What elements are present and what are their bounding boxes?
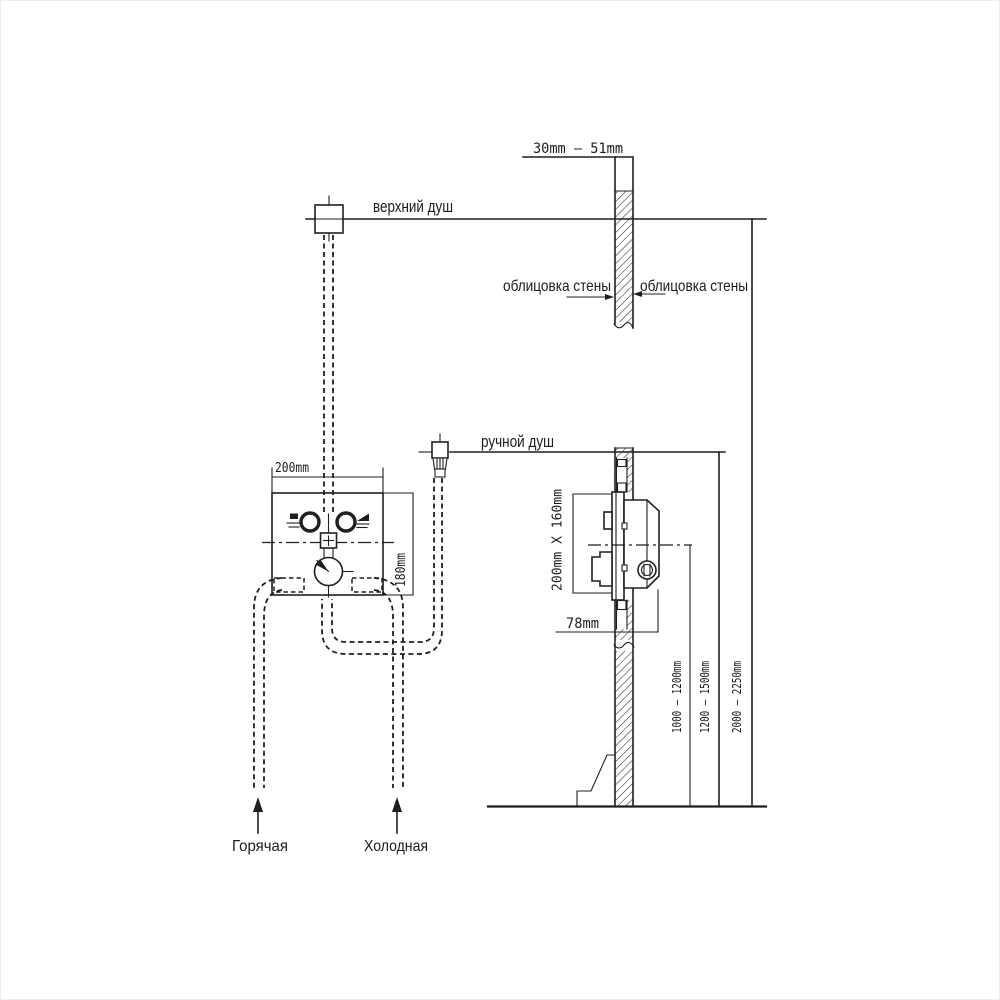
bolt-top xyxy=(622,523,627,529)
supply-pipe-channel xyxy=(617,600,628,629)
upper-shower-height-range-label: 2000 — 2250mm xyxy=(729,661,744,733)
cladding-left-label: облицовка стены xyxy=(503,278,611,295)
diagram-canvas: 200mm 180mm 200mm X 160mm 78mm xyxy=(0,0,1000,1000)
flow-knob xyxy=(337,513,355,531)
wall-break-wave-lower xyxy=(614,640,634,651)
hand-shower-height-range-label: 1200 — 1500mm xyxy=(697,661,712,733)
faceplate xyxy=(612,492,624,600)
dimension-mixer-height: 180mm xyxy=(383,493,413,595)
mixer-width-label: 200mm xyxy=(275,461,309,476)
dimension-mixer-width: 200mm xyxy=(272,461,383,493)
cold-supply-pipe xyxy=(374,578,403,833)
diverter-side-view xyxy=(592,552,612,586)
wall-hatch-upper xyxy=(615,191,633,322)
image-border xyxy=(1,1,1000,1000)
mixer-box xyxy=(262,493,394,597)
wall-hatch-lower xyxy=(615,600,633,806)
hand-shower-outlet xyxy=(419,434,448,477)
tile-thickness-label: 30mm — 51mm xyxy=(533,141,623,157)
hand-shower-label: ручной душ xyxy=(481,432,554,451)
hand-shower-elbow-channel xyxy=(617,458,628,492)
leader-arrow-left-icon xyxy=(633,291,642,297)
temperature-icon xyxy=(287,514,301,528)
flow-icon xyxy=(355,514,369,528)
knob-side-view xyxy=(604,512,612,529)
cold-supply-label: Холодная xyxy=(364,838,428,855)
rough-in-depth-label: 78mm xyxy=(566,616,599,632)
mixer-height-range-label: 1000 — 1200mm xyxy=(669,661,684,733)
hot-supply-label: Горячая xyxy=(232,838,288,855)
rough-in-opening-label: 200mm X 160mm xyxy=(551,489,566,591)
cladding-callout-left: облицовка стены xyxy=(503,278,614,300)
dimension-tile-thickness: 30mm — 51mm xyxy=(533,141,623,157)
upper-shower-label: верхний душ xyxy=(373,197,453,216)
cladding-callout-right: облицовка стены xyxy=(633,278,748,297)
mounting-screw xyxy=(638,561,656,579)
hot-supply-pipe xyxy=(253,578,282,833)
outlet-connector xyxy=(321,533,337,548)
temperature-knob xyxy=(301,513,319,531)
hot-arrow-up-icon xyxy=(253,797,263,812)
shower-riser-pipe xyxy=(324,235,333,533)
hand-shower-hose xyxy=(322,478,442,654)
wall-section-upper xyxy=(523,157,633,328)
cold-arrow-up-icon xyxy=(392,797,402,812)
in-wall-valve-body xyxy=(588,492,692,600)
bathtub-profile xyxy=(577,755,615,806)
mixer-height-label: 180mm xyxy=(394,553,409,587)
wall-break-wave-upper xyxy=(614,323,633,328)
upper-shower-outlet xyxy=(315,196,343,241)
shower-installation-diagram: 200mm 180mm 200mm X 160mm 78mm xyxy=(0,0,1000,1000)
diverter-valve xyxy=(315,548,354,597)
bolt-bottom xyxy=(622,565,627,571)
hose-connector xyxy=(433,458,447,477)
cladding-right-label: облицовка стены xyxy=(640,278,748,295)
dimension-rough-in-depth: 78mm xyxy=(556,590,658,632)
